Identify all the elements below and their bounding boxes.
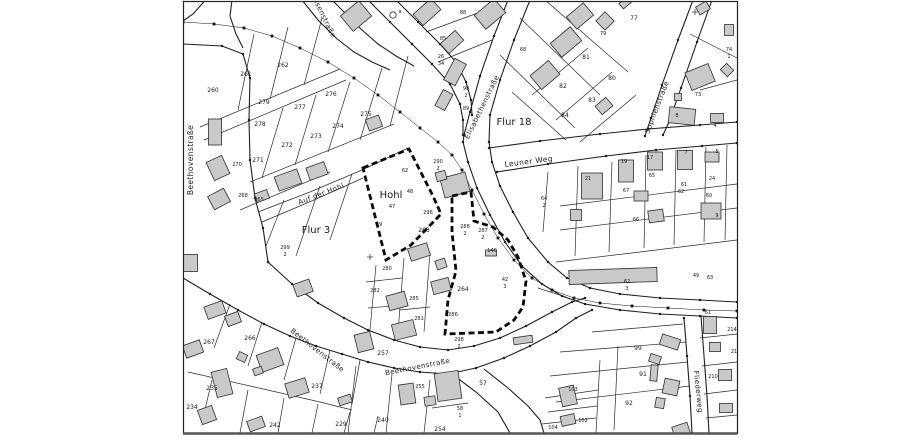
parcel-line bbox=[640, 240, 737, 252]
parcel-number-label: 99 bbox=[634, 345, 642, 352]
survey-point-marker bbox=[503, 357, 505, 359]
building-footprint bbox=[711, 114, 724, 123]
boundary-dot bbox=[531, 277, 534, 280]
parcel-number-label: 271 bbox=[252, 157, 264, 164]
survey-point-marker bbox=[555, 331, 557, 333]
survey-point-marker bbox=[343, 317, 345, 319]
survey-point-marker bbox=[476, 187, 478, 189]
survey-point-marker bbox=[341, 353, 343, 355]
parcel-number-label: 1 bbox=[727, 54, 730, 60]
parcel-number-label: 2 bbox=[457, 344, 460, 350]
boundary-dot bbox=[243, 27, 246, 30]
survey-point-marker bbox=[659, 297, 661, 299]
parcel-number-label: 74 bbox=[726, 47, 732, 53]
survey-point-marker bbox=[489, 114, 491, 116]
parcel-number-label: a bbox=[398, 9, 401, 15]
survey-point-marker bbox=[289, 335, 291, 337]
parcel-number-label: 140 bbox=[487, 248, 497, 254]
parcel-number-label: 62 bbox=[678, 189, 684, 195]
building-footprint bbox=[513, 335, 533, 345]
parcel-line bbox=[284, 338, 296, 380]
survey-point-marker bbox=[263, 323, 265, 325]
parcel-number-label: 62 bbox=[624, 279, 630, 285]
boundary-dot bbox=[327, 61, 330, 64]
parcel-number-label: 242 bbox=[269, 422, 281, 429]
survey-point-marker bbox=[499, 185, 501, 187]
survey-point-marker bbox=[469, 111, 471, 113]
boundary-dot bbox=[631, 305, 634, 308]
building-footprint bbox=[182, 340, 203, 358]
building-footprint bbox=[704, 317, 717, 334]
boundary-dot bbox=[573, 297, 576, 300]
survey-point-marker bbox=[589, 287, 591, 289]
building-footprint bbox=[209, 119, 222, 145]
parcel-number-label: 49 bbox=[376, 222, 382, 228]
parcel-line bbox=[548, 406, 597, 412]
boundary-dot bbox=[353, 77, 356, 80]
building-footprint bbox=[696, 1, 711, 15]
building-footprint bbox=[253, 366, 264, 376]
parcel-line bbox=[674, 150, 676, 245]
survey-point-marker bbox=[491, 161, 493, 163]
street-name-label: Beethovenstraße bbox=[289, 327, 346, 374]
building-footprint bbox=[398, 383, 416, 405]
building-footprint bbox=[340, 1, 371, 32]
building-footprint bbox=[424, 396, 436, 406]
parcel-number-label: 274 bbox=[332, 123, 344, 130]
building-footprint bbox=[386, 291, 408, 310]
parcel-line bbox=[706, 415, 737, 418]
parcel-number-label: 285 bbox=[409, 296, 419, 302]
parcel-number-label: 103 bbox=[568, 387, 578, 393]
parcel-number-label: 240 bbox=[377, 417, 389, 424]
survey-point-marker bbox=[419, 346, 421, 348]
parcel-line bbox=[512, 92, 566, 140]
point-symbol-icon bbox=[390, 12, 396, 18]
parcel-number-label: 2 bbox=[542, 203, 545, 209]
parcel-number-label: 4 bbox=[713, 123, 716, 129]
survey-point-marker bbox=[367, 361, 369, 363]
parcel-number-label: 66 bbox=[633, 217, 639, 223]
boundary-dot bbox=[497, 237, 500, 240]
parcel-number-label: 73 bbox=[695, 92, 701, 98]
survey-point-marker bbox=[619, 293, 621, 295]
parcel-number-label: 263 bbox=[418, 227, 430, 234]
road-edge bbox=[302, 0, 390, 70]
building-footprint bbox=[444, 58, 467, 85]
parcel-number-label: 104 bbox=[548, 425, 558, 431]
parcel-line bbox=[609, 162, 612, 252]
parcel-number-label: 288 bbox=[460, 224, 470, 230]
boundary-dot bbox=[451, 154, 454, 157]
parcel-line bbox=[204, 80, 346, 140]
parcel-number-label: 65 bbox=[649, 173, 655, 179]
parcel-number-label: 3 bbox=[503, 284, 506, 290]
parcel-number-label: 280 bbox=[382, 266, 392, 272]
parcel-line bbox=[312, 404, 318, 433]
survey-point-marker bbox=[539, 140, 541, 142]
survey-point-marker bbox=[701, 145, 703, 147]
building-footprint bbox=[434, 370, 462, 401]
building-footprint bbox=[725, 25, 734, 36]
parcel-line bbox=[240, 390, 248, 433]
parcel-number-label: 277 bbox=[294, 104, 306, 111]
survey-point-marker bbox=[262, 227, 264, 229]
street-name-label: Fliederweg bbox=[692, 370, 704, 413]
parcel-line bbox=[370, 265, 376, 330]
survey-point-marker bbox=[499, 337, 501, 339]
parcel-number-label: 214 bbox=[727, 327, 737, 333]
parcel-number-label: 2 bbox=[436, 166, 439, 172]
parcel-number-label: 49 bbox=[693, 273, 699, 279]
building-footprint bbox=[659, 334, 680, 350]
survey-point-marker bbox=[488, 141, 490, 143]
parcel-number-label: 281 bbox=[414, 316, 424, 322]
parcel-number-label: 296 bbox=[423, 210, 433, 216]
street-name-label: Beethovenstraße bbox=[186, 125, 195, 195]
survey-point-marker bbox=[504, 241, 506, 243]
building-footprint bbox=[338, 394, 353, 406]
district-label: Flur 18 bbox=[497, 117, 532, 128]
survey-point-marker bbox=[599, 133, 601, 135]
building-footprint bbox=[431, 277, 452, 294]
boundary-dot bbox=[437, 141, 440, 144]
survey-point-marker bbox=[389, 21, 391, 23]
building-footprint bbox=[440, 30, 464, 53]
building-footprint bbox=[354, 331, 374, 352]
parcel-number-label: 278 bbox=[254, 121, 266, 128]
survey-point-marker bbox=[447, 349, 449, 351]
survey-point-marker bbox=[267, 261, 269, 263]
building-footprints bbox=[182, 0, 733, 438]
parcel-number-label: 272 bbox=[281, 142, 293, 149]
survey-point-marker bbox=[662, 134, 664, 136]
parcel-number-label: 2 bbox=[463, 231, 466, 237]
survey-point-marker bbox=[584, 303, 586, 305]
parcel-line bbox=[644, 155, 646, 248]
building-footprint bbox=[668, 107, 696, 126]
building-footprint bbox=[391, 320, 416, 341]
survey-point-marker bbox=[419, 371, 421, 373]
parcel-number-label: 17 bbox=[647, 155, 653, 161]
parcel-line bbox=[424, 252, 430, 332]
district-label: Hohl bbox=[380, 190, 403, 201]
district-label: Flur 3 bbox=[302, 225, 331, 236]
survey-point-marker bbox=[459, 103, 461, 105]
survey-point-marker bbox=[513, 39, 515, 41]
survey-point-marker bbox=[411, 43, 413, 45]
building-footprint bbox=[550, 27, 581, 58]
cadastral-map-canvas[interactable]: 2602612622792772782762752742732722712702… bbox=[0, 0, 920, 438]
parcel-number-label: 68 bbox=[520, 47, 526, 53]
building-footprint bbox=[247, 416, 266, 432]
survey-point-marker bbox=[242, 53, 244, 55]
parcel-number-label: 270 bbox=[232, 162, 242, 168]
parcel-number-label: 42 bbox=[502, 277, 508, 283]
survey-point-marker bbox=[431, 63, 433, 65]
parcel-number-label: 9 bbox=[715, 213, 718, 219]
boundary-dot bbox=[213, 23, 216, 26]
building-footprint bbox=[596, 12, 614, 30]
parcel-number-label: 67 bbox=[623, 188, 629, 194]
building-footprint bbox=[197, 405, 216, 424]
parcel-number-label: 5 bbox=[715, 149, 718, 155]
parcel-number-label: 21 bbox=[585, 176, 591, 182]
building-footprint bbox=[634, 191, 648, 201]
parcel-line bbox=[250, 386, 320, 402]
parcel-number-label: 60 bbox=[706, 193, 712, 199]
parcel-number-label: 85 bbox=[440, 36, 446, 42]
parcel-number-label: 210 bbox=[708, 374, 718, 380]
parcel-number-label: 61 bbox=[705, 310, 711, 316]
survey-point-marker bbox=[525, 325, 527, 327]
map-content: 2602612622792772782762752742732722712702… bbox=[182, 0, 739, 438]
parcel-number-label: 268 bbox=[238, 193, 248, 199]
parcel-number-label: 48 bbox=[407, 189, 413, 195]
parcel-number-label: 82 bbox=[559, 83, 567, 90]
boundary-dot bbox=[377, 94, 380, 97]
building-footprint bbox=[274, 169, 302, 191]
road-edge bbox=[183, 0, 205, 21]
survey-point-marker bbox=[465, 81, 467, 83]
survey-point-marker bbox=[488, 147, 490, 149]
parcel-line bbox=[700, 334, 737, 338]
parcel-number-label: 34 bbox=[438, 61, 444, 67]
survey-point-marker bbox=[237, 309, 239, 311]
parcel-number-label: 264 bbox=[457, 286, 469, 293]
survey-point-marker bbox=[686, 355, 688, 357]
survey-point-marker bbox=[619, 309, 621, 311]
survey-point-marker bbox=[473, 345, 475, 347]
parcel-line bbox=[614, 346, 618, 430]
survey-point-marker bbox=[699, 124, 701, 126]
building-footprint bbox=[435, 170, 447, 181]
building-footprint bbox=[649, 353, 662, 364]
parcel-number-label: 267 bbox=[203, 339, 215, 346]
survey-point-marker bbox=[462, 119, 464, 121]
parcel-number-label: 299 bbox=[280, 245, 290, 251]
building-footprint bbox=[685, 64, 715, 91]
boundary-dot bbox=[299, 47, 302, 50]
parcel-line bbox=[262, 108, 283, 178]
parcel-line bbox=[702, 362, 737, 366]
parcel-line bbox=[390, 56, 408, 126]
survey-point-marker bbox=[689, 395, 691, 397]
building-footprint bbox=[530, 60, 560, 89]
parcel-number-label: 102 bbox=[578, 418, 588, 424]
parcel-number-label: 62 bbox=[402, 168, 408, 174]
parcel-number-label: 57 bbox=[479, 380, 487, 387]
parcel-number-label: 90 bbox=[463, 86, 469, 92]
building-footprint bbox=[285, 378, 309, 398]
parcel-number-label: 234 bbox=[186, 404, 198, 411]
parcel-number-label: 79 bbox=[600, 31, 606, 37]
parcel-line bbox=[592, 324, 683, 332]
parcel-number-label: 89 bbox=[463, 106, 469, 112]
parcel-number-label: 91 bbox=[639, 371, 647, 378]
building-footprint bbox=[571, 210, 582, 221]
boundary-dot bbox=[599, 302, 602, 305]
boundary-dot bbox=[419, 127, 422, 130]
parcel-number-label: 298 bbox=[454, 337, 464, 343]
building-footprint bbox=[435, 89, 453, 110]
survey-point-marker bbox=[529, 345, 531, 347]
survey-point-marker bbox=[575, 317, 577, 319]
building-footprint bbox=[211, 368, 233, 397]
parcel-number-label: 63 bbox=[707, 275, 713, 281]
building-footprint bbox=[720, 63, 733, 76]
survey-point-marker bbox=[489, 214, 491, 216]
building-footprint bbox=[720, 404, 733, 413]
survey-point-marker bbox=[209, 293, 211, 295]
parcel-number-label: 262 bbox=[277, 62, 289, 69]
survey-point-marker bbox=[479, 75, 481, 77]
boundary-dot bbox=[399, 111, 402, 114]
road-edge bbox=[183, 44, 268, 262]
survey-point-marker bbox=[699, 299, 701, 301]
survey-point-marker bbox=[683, 317, 685, 319]
parcel-line bbox=[200, 69, 340, 127]
parcel-number-label: 81 bbox=[582, 54, 590, 61]
parcel-number-label: 229 bbox=[335, 421, 347, 428]
road-edge bbox=[489, 0, 737, 302]
parcel-number-label: 257 bbox=[377, 350, 389, 357]
building-footprint bbox=[648, 209, 665, 223]
parcel-number-label: 279 bbox=[258, 99, 270, 106]
road-edge bbox=[230, 0, 243, 48]
road-edge bbox=[684, 318, 692, 433]
road-edge bbox=[484, 369, 544, 433]
building-footprint bbox=[675, 94, 682, 101]
survey-point-marker bbox=[249, 159, 251, 161]
parcel-number-label: 92 bbox=[625, 400, 633, 407]
parcel-number-label: 276 bbox=[325, 91, 337, 98]
survey-point-marker bbox=[696, 41, 698, 43]
survey-point-marker bbox=[566, 277, 568, 279]
survey-point-marker bbox=[547, 261, 549, 263]
building-footprint bbox=[208, 188, 231, 210]
survey-point-marker bbox=[475, 367, 477, 369]
survey-point-marker bbox=[496, 171, 498, 173]
building-footprint bbox=[672, 422, 691, 437]
survey-point-marker bbox=[527, 237, 529, 239]
survey-point-marker bbox=[677, 39, 679, 41]
parcel-number-label: 61 bbox=[681, 182, 687, 188]
building-footprint bbox=[655, 397, 666, 408]
parcel-number-label: 21 bbox=[731, 349, 737, 355]
building-footprint bbox=[595, 97, 613, 114]
survey-point-marker bbox=[644, 135, 646, 137]
survey-point-marker bbox=[221, 45, 223, 47]
survey-point-marker bbox=[571, 301, 573, 303]
parcel-number-label: 77 bbox=[630, 15, 638, 22]
survey-point-marker bbox=[467, 161, 469, 163]
parcel-number-label: 260 bbox=[207, 87, 219, 94]
parcel-number-label: 88 bbox=[460, 10, 466, 16]
parcel-number-label: 254 bbox=[434, 426, 446, 433]
parcel-number-label: 83 bbox=[588, 97, 596, 104]
parcel-number-label: 80 bbox=[608, 75, 616, 82]
parcel-line bbox=[366, 278, 402, 282]
parcel-number-label: 261 bbox=[240, 71, 252, 78]
parcel-number-label: 273 bbox=[310, 133, 322, 140]
parcel-number-label: 2 bbox=[464, 93, 467, 99]
building-footprint bbox=[569, 267, 657, 284]
building-footprint bbox=[183, 255, 198, 272]
survey-point-marker bbox=[655, 149, 657, 151]
survey-point-marker bbox=[551, 311, 553, 313]
parcel-number-label: 265 bbox=[254, 197, 264, 203]
boundary-dot bbox=[551, 289, 554, 292]
parcel-number-label: 282 bbox=[370, 288, 380, 294]
building-footprint bbox=[560, 414, 576, 427]
parcel-line bbox=[725, 145, 727, 240]
street-name-label: Luisenstraße bbox=[308, 0, 337, 39]
building-footprint bbox=[293, 279, 313, 297]
parcel-number-label: 8 bbox=[675, 113, 678, 119]
survey-point-marker bbox=[680, 87, 682, 89]
building-footprint bbox=[435, 258, 447, 270]
cadastral-map-viewport[interactable]: 2602612622792772782762752742732722712702… bbox=[0, 0, 920, 438]
parcel-number-label: 3 bbox=[625, 286, 628, 292]
parcel-number-label: 24 bbox=[709, 176, 715, 182]
parcel-line bbox=[704, 390, 737, 394]
parcel-number-label: 287 bbox=[478, 228, 488, 234]
parcel-line bbox=[550, 362, 688, 376]
building-footprint bbox=[662, 378, 680, 396]
building-footprint bbox=[710, 343, 721, 352]
parcel-line bbox=[386, 374, 392, 433]
parcel-number-label: 1 bbox=[458, 413, 461, 419]
parcel-number-label: 26 bbox=[438, 54, 444, 60]
parcel-line bbox=[556, 252, 640, 262]
building-footprint bbox=[236, 351, 248, 362]
survey-point-marker bbox=[512, 211, 514, 213]
boundary-dot bbox=[461, 169, 464, 172]
parcel-number-label: 286 bbox=[448, 312, 458, 318]
survey-point-marker bbox=[493, 35, 495, 37]
survey-point-marker bbox=[605, 155, 607, 157]
parcel-number-label: 290 bbox=[433, 159, 443, 165]
survey-point-marker bbox=[591, 309, 593, 311]
selected-parcel-boundary[interactable] bbox=[363, 149, 441, 260]
building-footprint bbox=[566, 3, 593, 29]
parcel-number-label: 255 bbox=[415, 384, 425, 390]
boundary-dot bbox=[667, 307, 670, 310]
parcel-number-label: 266 bbox=[244, 335, 256, 342]
parcel-number-label: 275 bbox=[360, 111, 372, 118]
parcel-number-label: 64 bbox=[541, 196, 547, 202]
survey-point-marker bbox=[367, 329, 369, 331]
parcel-number-label: 237 bbox=[311, 383, 323, 390]
parcel-number-label: 7 bbox=[684, 150, 687, 156]
parcel-number-label: 2 bbox=[481, 235, 484, 241]
building-footprint bbox=[719, 370, 732, 381]
survey-point-marker bbox=[584, 297, 586, 299]
survey-point-marker bbox=[561, 295, 563, 297]
building-footprint bbox=[225, 311, 242, 326]
parcel-number-label: 58 bbox=[457, 406, 463, 412]
building-footprint bbox=[206, 155, 230, 180]
building-footprint bbox=[650, 365, 658, 382]
boundary-dot bbox=[271, 35, 274, 38]
parcel-number-label: 235 bbox=[206, 385, 218, 392]
survey-point-marker bbox=[248, 119, 250, 121]
boundary-dot bbox=[513, 259, 516, 262]
survey-point-marker bbox=[317, 302, 319, 304]
survey-point-marker bbox=[470, 99, 472, 101]
parcel-number-label: 2 bbox=[283, 252, 286, 258]
